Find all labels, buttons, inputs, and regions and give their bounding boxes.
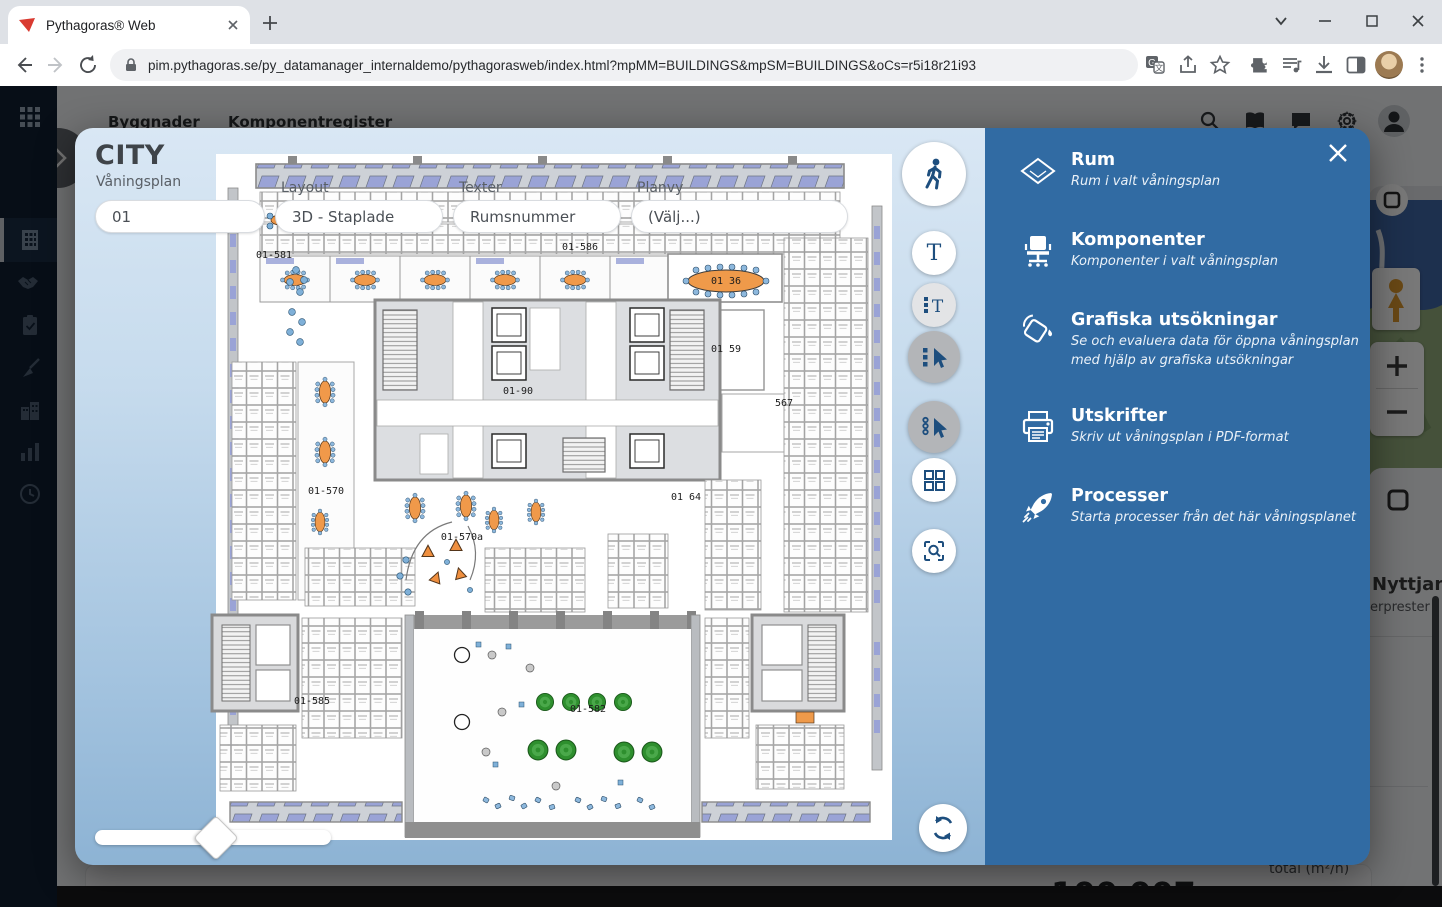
office-chair-icon — [1017, 230, 1059, 272]
panel-item-processer[interactable]: Processer Starta processer från det här … — [985, 486, 1370, 528]
share-icon[interactable] — [1176, 53, 1200, 77]
room-label: 01-581 — [256, 250, 292, 261]
tab-search-chevron-icon[interactable] — [1272, 12, 1290, 30]
text-tool-button[interactable]: T — [912, 231, 956, 275]
tiles-view-button[interactable] — [912, 458, 956, 502]
room-label: 01 64 — [671, 492, 701, 503]
room-label: 01-582 — [570, 704, 606, 715]
window-close-button[interactable] — [1409, 12, 1427, 30]
paint-bucket-icon — [1017, 310, 1059, 352]
bookmark-star-icon[interactable] — [1208, 53, 1232, 77]
room-label: 01-570 — [308, 486, 344, 497]
lock-icon — [124, 57, 138, 73]
multi-select-cursor-icon — [919, 342, 949, 372]
side-panel-icon[interactable] — [1344, 53, 1368, 77]
room-label: 01 59 — [711, 344, 741, 355]
scan-search-icon — [921, 538, 947, 564]
room-label: 01-586 — [562, 242, 598, 253]
multi-text-tool-button[interactable]: T — [912, 283, 956, 327]
floor-select[interactable]: 01 — [95, 200, 265, 233]
media-playlist-icon[interactable] — [1280, 53, 1304, 77]
walk-icon — [916, 156, 952, 192]
floorplan-canvas[interactable]: 01-58601-58101 3601 5901-9056701 6401-57… — [200, 150, 905, 845]
panel-item-rum[interactable]: Rum Rum i valt våningsplan — [985, 150, 1370, 192]
pythagoras-logo-icon — [18, 17, 36, 33]
panel-item-title: Rum — [1071, 150, 1359, 170]
text-icon: T — [921, 240, 947, 266]
panel-item-title: Komponenter — [1071, 230, 1359, 250]
reload-button[interactable] — [76, 53, 100, 77]
panel-item-subtitle: Se och evaluera data för öppna våningspl… — [1071, 333, 1359, 371]
panel-item-subtitle: Komponenter i valt våningsplan — [1071, 253, 1359, 272]
browser-profile-avatar[interactable] — [1375, 51, 1403, 79]
panel-item-subtitle: Starta processer från det här våningspla… — [1071, 509, 1359, 528]
layout-select[interactable]: 3D - Staplade — [275, 200, 443, 233]
translate-icon[interactable]: G 文 — [1143, 53, 1167, 77]
room-label: 567 — [775, 398, 793, 409]
field-label-vaningsplan: Våningsplan — [96, 174, 181, 190]
svg-text:T: T — [932, 297, 944, 317]
room-label: 01-585 — [294, 696, 330, 707]
panel-item-grafiska-utsokningar[interactable]: Grafiska utsökningar Se och evaluera dat… — [985, 310, 1370, 371]
rotate-sync-icon — [929, 814, 957, 842]
tiles-icon — [921, 467, 947, 493]
lasso-cursor-icon — [919, 412, 949, 442]
floorplan-dialog: 01-58601-58101 3601 5901-9056701 6401-57… — [75, 128, 1370, 865]
field-label-texter: Texter — [459, 180, 502, 196]
actions-panel: Rum Rum i valt våningsplan Komponenter K… — [985, 128, 1370, 865]
browser-tab-strip: Pythagoras® Web — [0, 0, 1442, 44]
multi-text-icon: T — [921, 292, 947, 318]
room-label: 01-90 — [503, 386, 533, 397]
tab-close-icon[interactable] — [226, 18, 240, 32]
room-diamond-icon — [1017, 150, 1059, 192]
address-bar[interactable]: pim.pythagoras.se/py_datamanager_interna… — [110, 49, 1138, 81]
forward-button[interactable] — [44, 53, 68, 77]
window-maximize-button[interactable] — [1363, 12, 1381, 30]
rocket-icon — [1017, 486, 1059, 528]
texts-select[interactable]: Rumsnummer — [453, 200, 621, 233]
panel-item-utskrifter[interactable]: Utskrifter Skriv ut våningsplan i PDF-fo… — [985, 406, 1370, 448]
panel-item-title: Grafiska utsökningar — [1071, 310, 1359, 330]
url-text: pim.pythagoras.se/py_datamanager_interna… — [148, 58, 976, 73]
panel-item-subtitle: Rum i valt våningsplan — [1071, 173, 1359, 192]
planview-select[interactable]: (Välj...) — [631, 200, 848, 233]
download-icon[interactable] — [1312, 53, 1336, 77]
extensions-puzzle-icon[interactable] — [1248, 53, 1272, 77]
rotate-view-button[interactable] — [919, 804, 967, 852]
lasso-select-tool-button[interactable] — [908, 401, 960, 453]
floorplan-viewer: 01-58601-58101 3601 5901-9056701 6401-57… — [75, 128, 985, 865]
browser-window: { "browser": { "tab_title": "Pythagoras®… — [0, 0, 1442, 907]
field-label-layout: Layout — [281, 180, 329, 196]
field-label-planvy: Planvy — [637, 180, 683, 196]
window-minimize-button[interactable] — [1316, 12, 1334, 30]
panel-item-title: Processer — [1071, 486, 1359, 506]
panel-item-komponenter[interactable]: Komponenter Komponenter i valt våningspl… — [985, 230, 1370, 272]
room-label: 01-570a — [441, 532, 483, 543]
panel-item-title: Utskrifter — [1071, 406, 1359, 426]
svg-text:文: 文 — [1154, 62, 1163, 73]
new-tab-button[interactable] — [262, 15, 278, 31]
browser-toolbar: pim.pythagoras.se/py_datamanager_interna… — [0, 44, 1442, 87]
multi-select-tool-button[interactable] — [908, 331, 960, 383]
tab-title: Pythagoras® Web — [46, 18, 226, 33]
panel-item-subtitle: Skriv ut våningsplan i PDF-format — [1071, 429, 1359, 448]
browser-menu-kebab-icon[interactable] — [1410, 53, 1434, 77]
printer-icon — [1017, 406, 1059, 448]
room-label: 01 36 — [711, 276, 741, 287]
zoom-to-selection-button[interactable] — [912, 529, 956, 573]
page-title: CITY — [95, 140, 165, 171]
svg-text:T: T — [927, 241, 942, 266]
back-button[interactable] — [12, 53, 36, 77]
browser-tab[interactable]: Pythagoras® Web — [8, 6, 250, 44]
walk-mode-button[interactable] — [902, 142, 966, 206]
